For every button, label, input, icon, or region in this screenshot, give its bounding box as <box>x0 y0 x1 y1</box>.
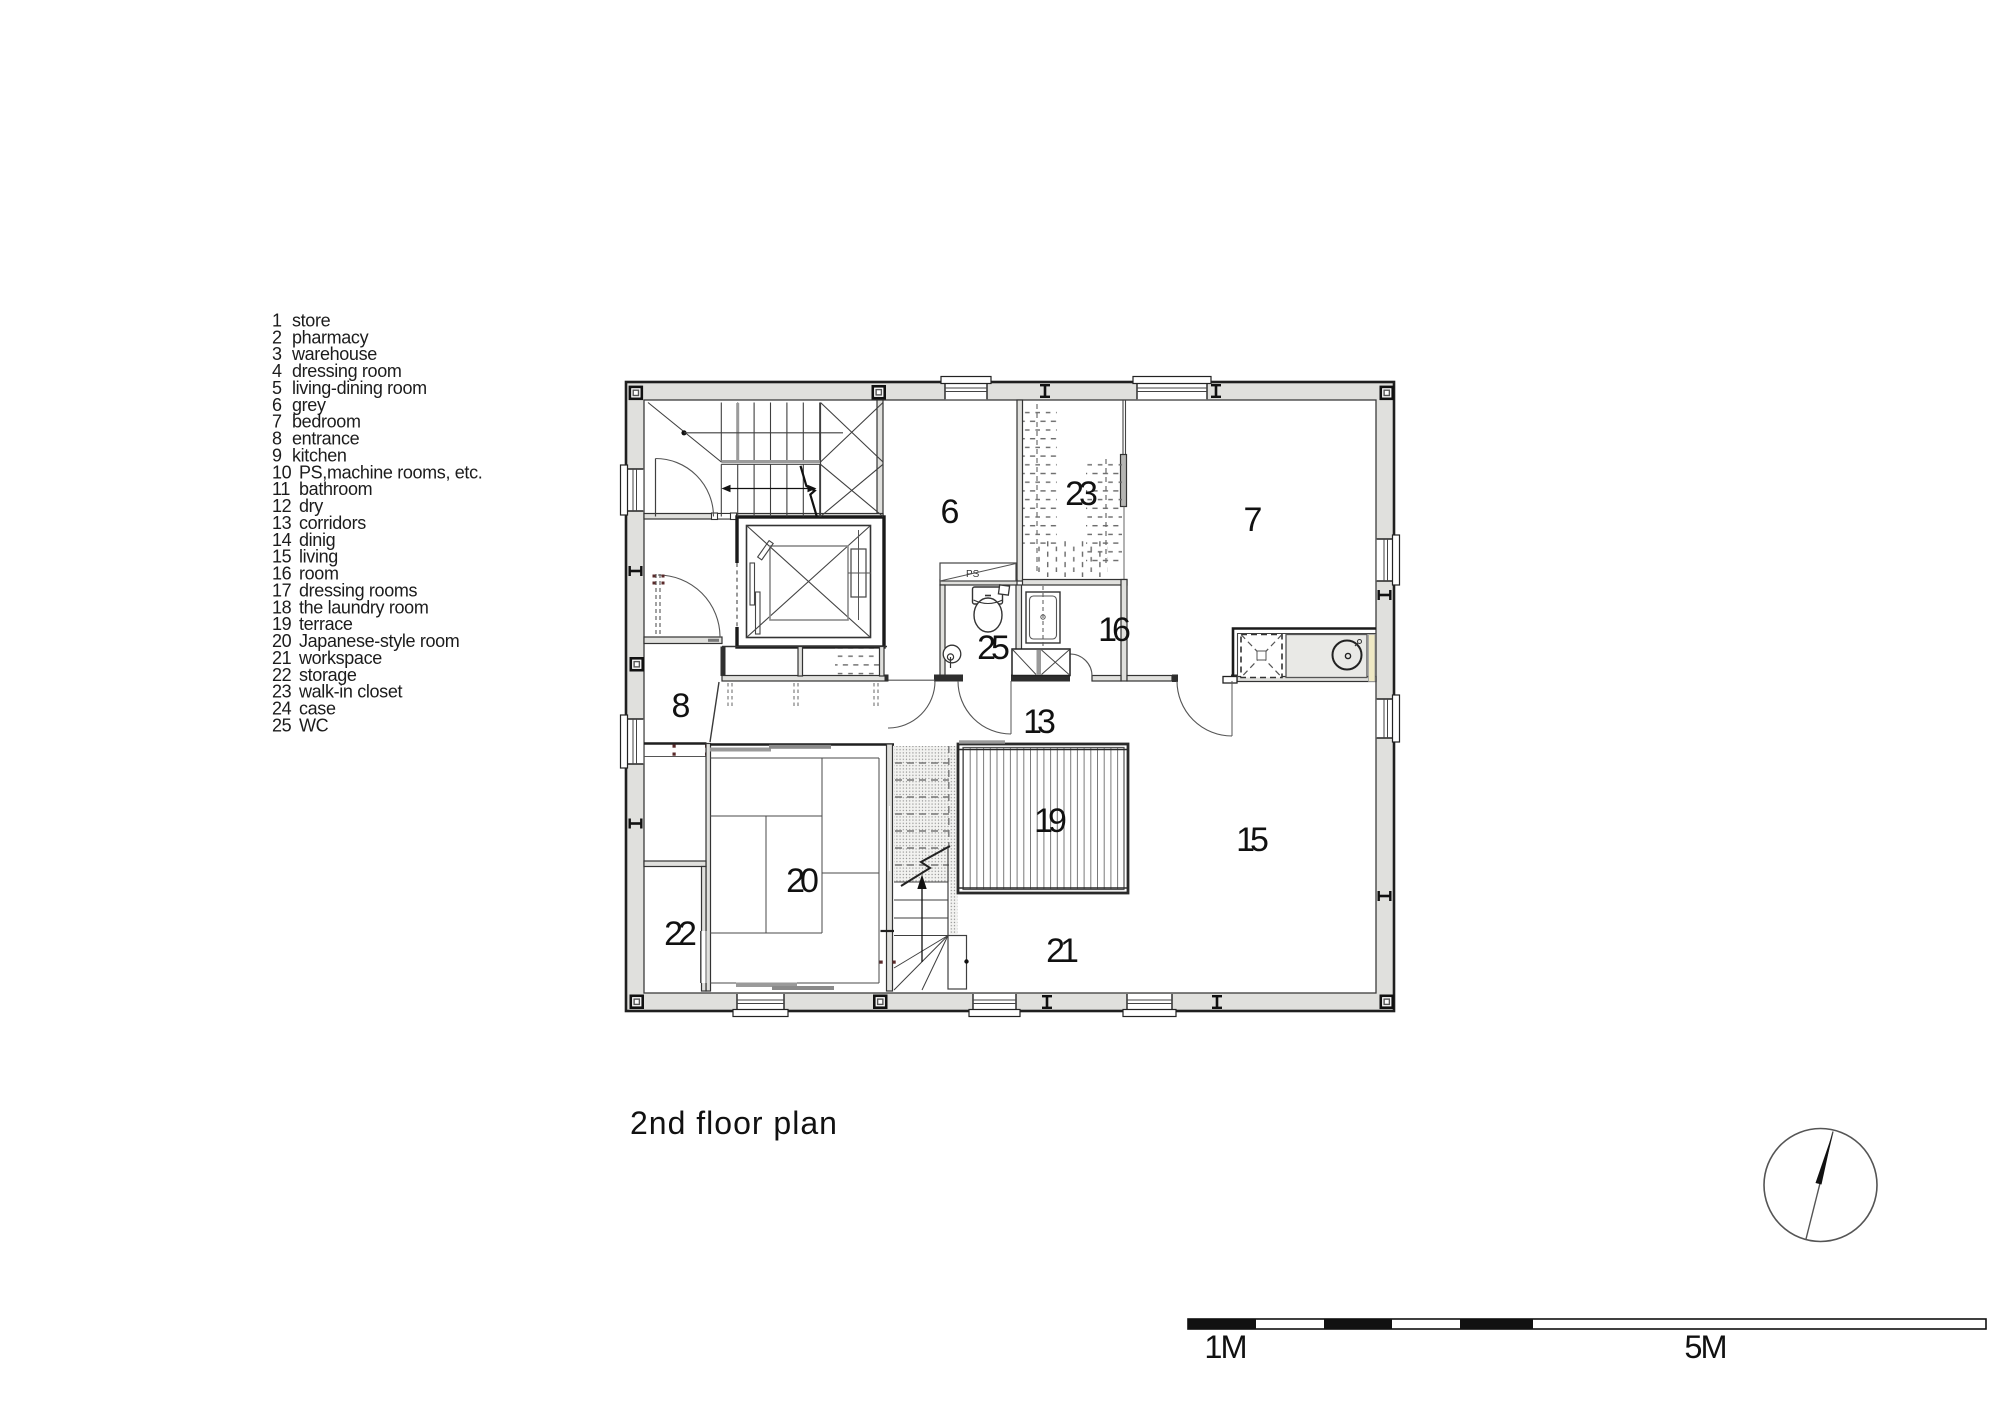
svg-text:15: 15 <box>1236 821 1268 859</box>
svg-text:22: 22 <box>664 915 696 953</box>
svg-text:6: 6 <box>941 493 960 531</box>
svg-text:7: 7 <box>1244 501 1263 539</box>
svg-text:19: 19 <box>1034 802 1066 840</box>
svg-text:5M: 5M <box>1684 1329 1725 1365</box>
svg-text:23: 23 <box>1065 475 1097 513</box>
svg-text:25: 25 <box>272 715 292 735</box>
svg-text:2nd floor plan: 2nd floor plan <box>630 1105 838 1141</box>
svg-text:PS: PS <box>966 569 980 580</box>
svg-text:8: 8 <box>672 687 691 725</box>
svg-text:16: 16 <box>1098 611 1130 649</box>
svg-text:1M: 1M <box>1204 1329 1245 1365</box>
svg-text:WC: WC <box>299 715 329 735</box>
svg-text:25: 25 <box>977 629 1009 667</box>
svg-text:21: 21 <box>1046 932 1078 970</box>
svg-text:13: 13 <box>1023 703 1055 741</box>
svg-text:20: 20 <box>786 862 818 900</box>
